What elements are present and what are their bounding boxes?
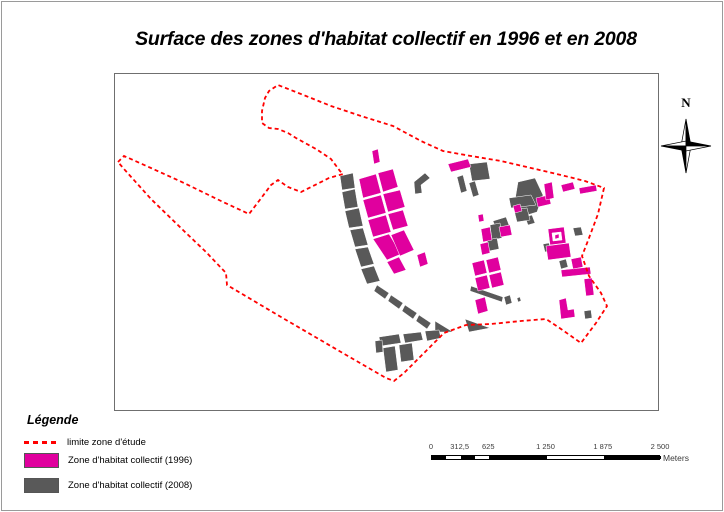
scale-tick-label: 1 250 [536,442,555,451]
zones-1996 [383,190,405,212]
zones-2008 [342,189,358,209]
map-document-page: { "title": "Surface des zones d'habitat … [0,0,724,512]
compass-rose-icon [658,109,714,179]
zones-1996 [417,252,428,267]
zones-1996 [387,257,406,274]
scale-tick-label: 1 875 [593,442,612,451]
legend-item-label: limite zone d'étude [67,437,146,448]
courtyard-dot-1996 [555,234,559,239]
zones-1996 [544,182,554,200]
legend-item-boundary: limite zone d'étude [24,435,146,449]
zones-1996 [499,225,512,237]
map-canvas [115,74,658,410]
zones-2008 [383,346,398,372]
zones-2008 [340,173,355,190]
zone-2008-swatch [24,478,59,493]
zones-1996 [372,149,380,164]
zones-2008 [374,285,389,299]
zones-1996 [359,174,381,198]
zones-2008 [559,259,568,269]
zones-2008 [457,175,467,193]
zones-2008 [414,173,430,194]
scale-bar-segment [461,456,475,459]
zones-1996 [571,257,583,269]
zones-2008 [469,162,490,181]
scale-tick-label: 0 [429,442,433,451]
zones-1996 [561,182,575,192]
zones-1996 [478,214,484,222]
scale-bar: 0312,56251 2501 8752 500 Meters [431,442,701,466]
scale-tick-label: 2 500 [651,442,670,451]
zones-1996 [486,257,501,273]
zones-2008 [345,208,363,228]
scale-bar-segment [547,456,604,459]
scale-tick-label: 625 [482,442,495,451]
map-frame [114,73,659,411]
zones-2008 [465,319,490,332]
zones-2008 [504,295,512,305]
zones-1996 [475,297,488,314]
zones-2008 [403,332,423,343]
north-arrow: N [658,95,714,181]
dashed-line-swatch [24,441,58,444]
zones-2008 [469,181,479,197]
zones-2008 [388,295,403,309]
scale-bar-labels: 0312,56251 2501 8752 500 [431,442,660,452]
legend-item-2008: Zone d'habitat collectif (2008) [24,478,192,492]
scale-tick-label: 312,5 [450,442,469,451]
zone-1996-swatch [24,453,59,468]
zones-2008 [350,228,368,247]
scale-bar-segment [604,456,661,459]
zones-2008 [584,310,592,319]
scale-unit-label: Meters [663,453,689,463]
zones-1996 [472,260,487,276]
zones-1996 [448,159,471,172]
zones-1996 [378,169,398,192]
zones-2008 [375,340,383,353]
zones-1996 [480,242,490,255]
map-title: Surface des zones d'habitat collectif en… [90,28,682,51]
legend-item-1996: Zone d'habitat collectif (1996) [24,453,192,467]
zones-2008 [573,227,583,236]
zones-1996 [368,215,391,237]
legend-heading: Légende [27,413,78,427]
zones-2008 [399,343,414,362]
zones-1996 [579,185,597,194]
legend-item-label: Zone d'habitat collectif (2008) [68,480,192,491]
scale-bar-segment [432,456,446,459]
zones-1996 [363,195,386,218]
zones-1996 [546,243,571,260]
scale-bar-segment [489,456,546,459]
scale-bar-segments [431,455,660,460]
zones-1996 [489,272,504,288]
scale-bar-segment [475,456,489,459]
zones-1996 [475,275,490,291]
zones-2008 [517,297,521,302]
zones-2008 [416,315,431,329]
zones-1996 [481,227,492,242]
legend-item-label: Zone d'habitat collectif (1996) [68,455,192,466]
zones-2008 [361,266,380,284]
zones-1996 [559,298,575,319]
zones-2008 [402,305,417,319]
scale-bar-segment [446,456,460,459]
zones-2008 [425,330,441,341]
zones-2008 [355,247,374,267]
zones-1996 [388,210,408,230]
